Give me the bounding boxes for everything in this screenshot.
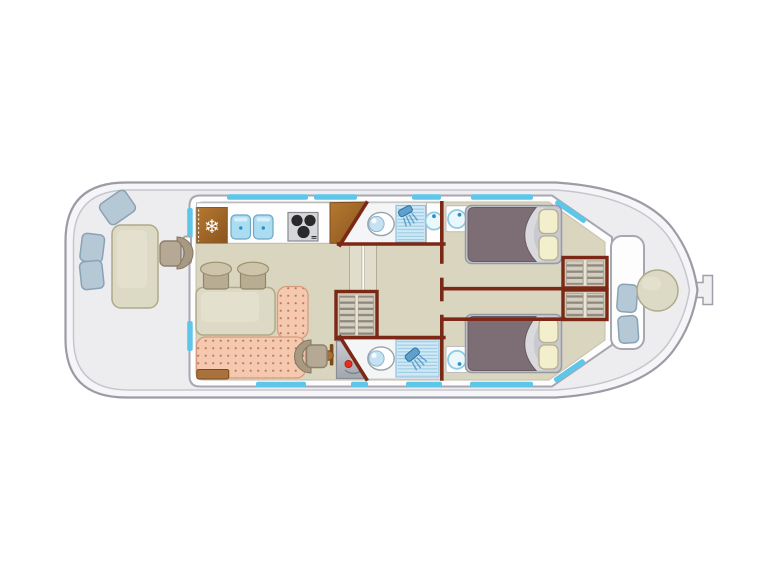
snowflake-icon: ❄ — [204, 216, 220, 238]
led-red — [345, 360, 352, 367]
wardrobe-cabin-bottom — [563, 290, 607, 320]
pillow — [539, 236, 558, 260]
wardrobe-cabin-top — [563, 258, 607, 289]
window-strip — [314, 194, 357, 200]
floor-plan-canvas: ❄ — [0, 0, 768, 576]
window-strip — [256, 382, 306, 388]
sofa-step — [197, 370, 229, 380]
galley-sink-left — [231, 215, 251, 239]
window-strip — [412, 194, 441, 200]
toilet-top — [368, 212, 394, 235]
window-strip — [227, 194, 308, 200]
washbasin-cabin-top — [446, 206, 468, 232]
galley-sink-right — [254, 215, 274, 239]
shower-bottom — [396, 340, 439, 378]
stool-2 — [238, 262, 269, 289]
window-strip — [470, 382, 533, 388]
armchair — [295, 340, 327, 373]
saloon-wardrobe — [336, 292, 377, 340]
refrigerator: ❄ — [197, 208, 228, 244]
double-bed-top — [466, 206, 562, 264]
window-strip — [187, 321, 193, 351]
window-strip — [406, 382, 442, 388]
shower-top — [396, 205, 426, 242]
companionway-steps — [350, 244, 377, 291]
pillow — [539, 319, 558, 343]
aft-table-sheen — [117, 230, 147, 288]
deck-seat-bow-1 — [617, 284, 638, 313]
window-strip — [471, 194, 533, 200]
pillow — [539, 210, 558, 234]
deck-seat-aft-2 — [79, 233, 105, 264]
window-strip — [351, 382, 368, 388]
window-strip — [187, 208, 193, 238]
galley: ❄ — [197, 202, 367, 243]
toilet-bottom — [368, 347, 394, 370]
washbasin-cabin-bottom — [446, 347, 468, 373]
pillow — [539, 345, 558, 369]
boat-floor-plan: ❄ — [0, 0, 768, 576]
double-bed-bottom — [466, 315, 562, 373]
dinette-table-sheen — [201, 292, 259, 322]
sofa-right-section — [278, 287, 309, 339]
stove — [288, 213, 318, 242]
deck-seat-aft-3 — [79, 260, 104, 290]
stool-1 — [201, 262, 232, 289]
bow-table-sheen — [642, 277, 662, 291]
deck-seat-bow-2 — [618, 315, 639, 343]
bow-table — [637, 270, 678, 311]
helm-seat — [160, 237, 193, 269]
